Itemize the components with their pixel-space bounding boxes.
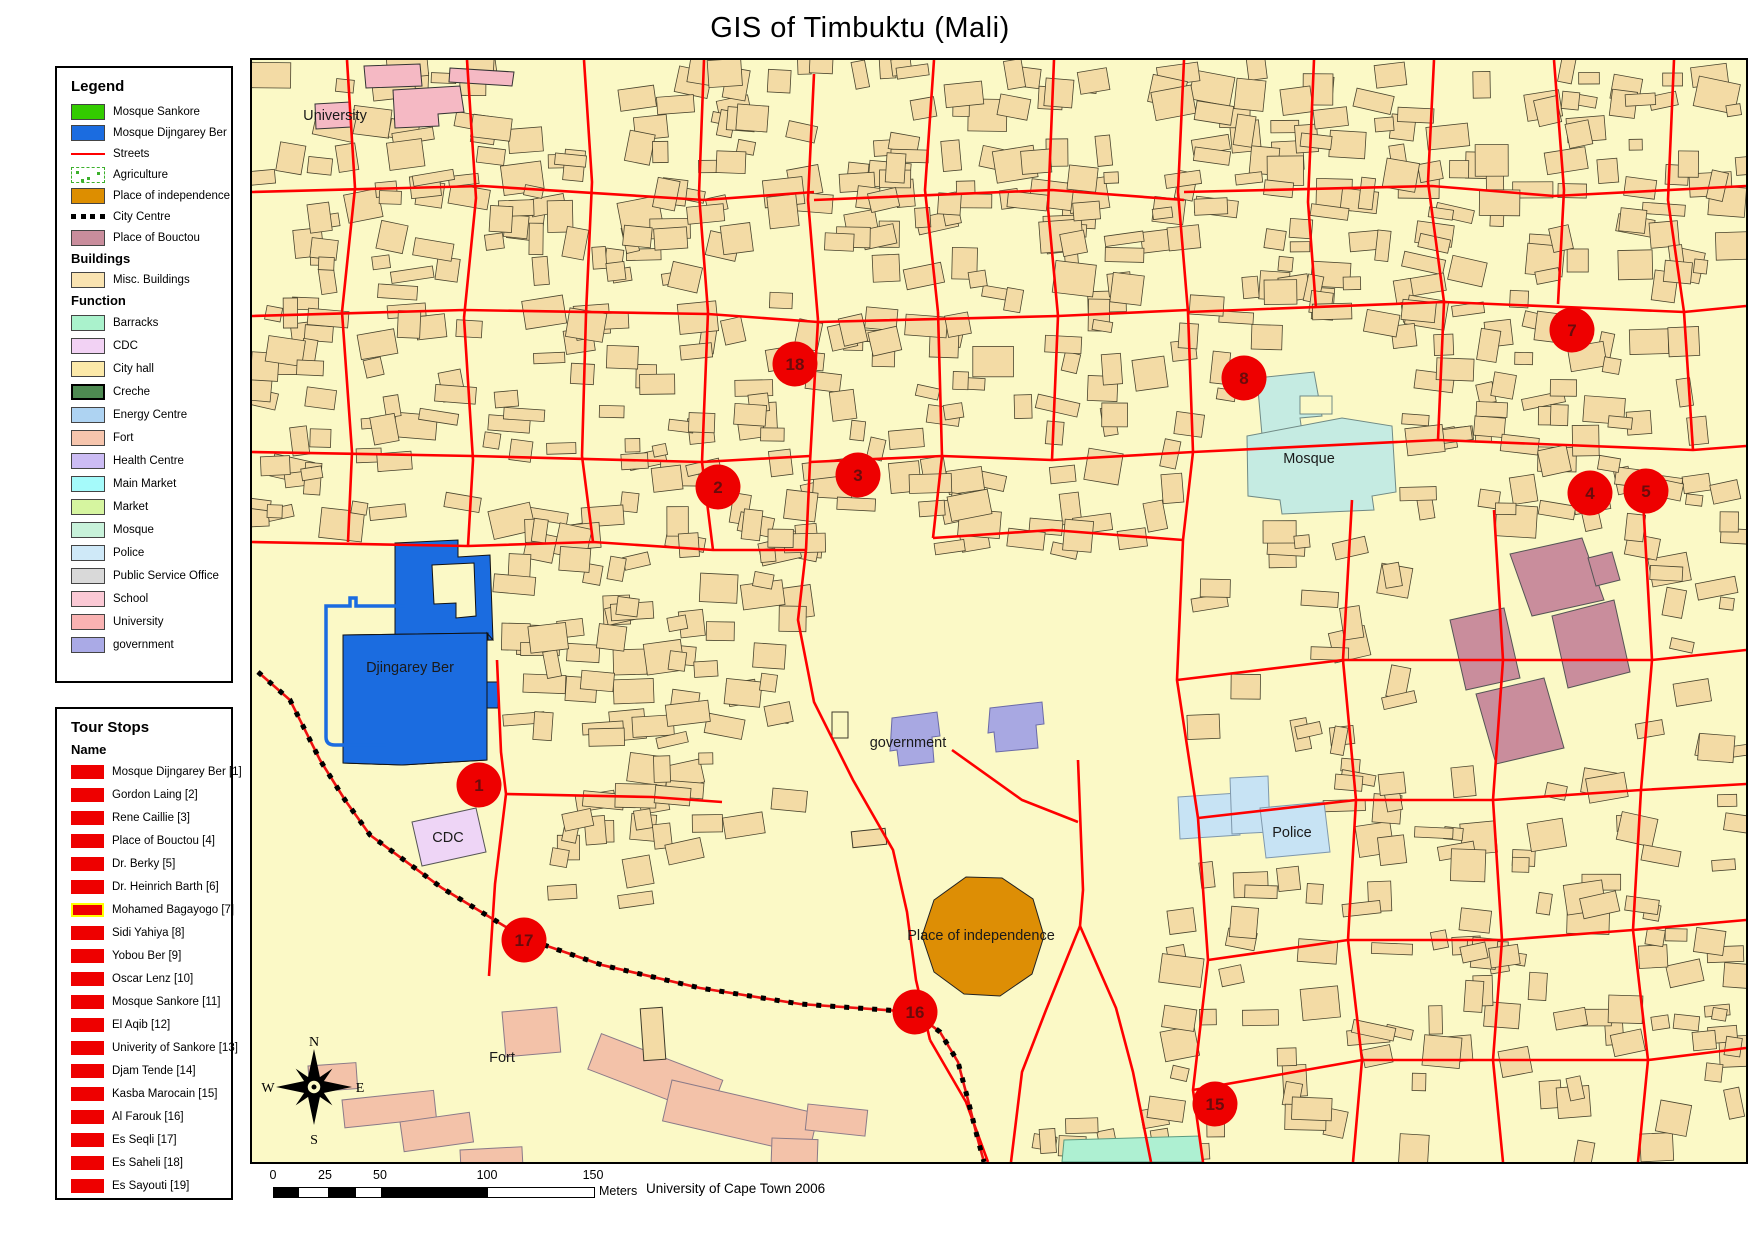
attribution: University of Cape Town 2006 [646, 1181, 825, 1196]
legend-item: Market [71, 495, 227, 518]
map-document: GIS of Timbuktu (Mali) Legend Mosque San… [0, 0, 1753, 1241]
tour-stops-list: Mosque Dijngarey Ber [1]Gordon Laing [2]… [71, 760, 227, 1197]
legend-item: University [71, 610, 227, 633]
legend-item-label: Health Centre [113, 455, 184, 467]
map-viewport[interactable]: UniversityDjingarey BerCDCgovernmentMosq… [250, 58, 1748, 1164]
tour-stop-item[interactable]: Es Saheli [18] [71, 1151, 227, 1174]
tour-stop-swatch [71, 811, 104, 825]
legend-item: Streets [71, 143, 227, 164]
legend-color-swatch [71, 230, 105, 246]
map-label: Place of independence [907, 928, 1055, 944]
tour-stop-swatch [71, 926, 104, 940]
legend-item-label: Mosque [113, 524, 154, 536]
tour-stops-header: Tour Stops [71, 719, 227, 736]
tour-stop-label: Rene Caillie [3] [112, 812, 190, 824]
tour-stop-item[interactable]: Rene Caillie [3] [71, 806, 227, 829]
legend-color-swatch [71, 315, 105, 331]
tour-stop-marker[interactable]: 2 [696, 465, 741, 510]
legend-item-label: Energy Centre [113, 409, 187, 421]
scale-tick-label: 150 [578, 1168, 608, 1182]
tour-stop-swatch [71, 1156, 104, 1170]
legend-color-swatch [71, 338, 105, 354]
tour-stop-marker-number: 3 [853, 466, 862, 485]
tour-stop-label: Dr. Berky [5] [112, 858, 175, 870]
tour-stop-marker-number: 7 [1567, 321, 1576, 340]
legend-item: City hall [71, 357, 227, 380]
tour-stop-swatch [71, 995, 104, 1009]
legend-color-swatch [71, 476, 105, 492]
tour-stop-item[interactable]: Al Farouk [16] [71, 1105, 227, 1128]
tour-stop-item[interactable]: Dr. Heinrich Barth [6] [71, 875, 227, 898]
legend-buildings-items: Misc. Buildings [71, 269, 227, 290]
tour-stop-swatch [71, 903, 104, 917]
scale-tick-label: 50 [365, 1168, 395, 1182]
tour-stop-item[interactable]: El Aqib [12] [71, 1013, 227, 1036]
legend-color-swatch [71, 499, 105, 515]
centre-building [832, 712, 848, 738]
scale-tick-label: 25 [310, 1168, 340, 1182]
legend-item: School [71, 587, 227, 610]
map-label: Police [1272, 825, 1312, 841]
legend-color-swatch [71, 614, 105, 630]
tour-stop-swatch [71, 1064, 104, 1078]
tour-stop-item[interactable]: Place of Bouctou [4] [71, 829, 227, 852]
tour-stop-label: Mosque Dijngarey Ber [1] [112, 766, 242, 778]
tour-stop-item[interactable]: Gordon Laing [2] [71, 783, 227, 806]
legend-item-label: Market [113, 501, 148, 513]
tour-stop-label: Djam Tende [14] [112, 1065, 196, 1077]
legend-item: Misc. Buildings [71, 269, 227, 290]
tour-stop-marker[interactable]: 1 [457, 763, 502, 808]
legend-item: Creche [71, 380, 227, 403]
tour-stop-swatch [71, 949, 104, 963]
tour-stop-item[interactable]: Mosque Dijngarey Ber [1] [71, 760, 227, 783]
legend-color-swatch [71, 272, 105, 288]
legend-item: Mosque [71, 518, 227, 541]
tour-stop-label: Place of Bouctou [4] [112, 835, 215, 847]
legend-color-swatch [71, 545, 105, 561]
legend-item-label: Police [113, 547, 144, 559]
map-label: government [870, 735, 947, 751]
tour-stop-marker-number: 2 [713, 478, 722, 497]
tour-stop-marker-number: 1 [474, 776, 483, 795]
mosque-courtyard [1300, 396, 1332, 414]
legend-item: Agriculture [71, 164, 227, 185]
tour-stop-marker-number: 5 [1641, 482, 1650, 501]
legend-function-items: BarracksCDCCity hallCrecheEnergy CentreF… [71, 311, 227, 656]
legend-item: Place of independence [71, 185, 227, 206]
legend-color-swatch [71, 384, 105, 400]
tour-stop-label: Kasba Marocain [15] [112, 1088, 217, 1100]
tour-stop-marker-number: 17 [515, 931, 534, 950]
legend-item: Mosque Sankore [71, 101, 227, 122]
tour-stop-swatch [71, 880, 104, 894]
legend-item-label: Mosque Dijngarey Ber [113, 127, 227, 139]
tour-stop-swatch [71, 834, 104, 848]
tour-stop-item[interactable]: Es Sayouti [19] [71, 1174, 227, 1197]
map-label: University [303, 108, 367, 124]
legend-item-label: University [113, 616, 163, 628]
tour-stop-item[interactable]: Sidi Yahiya [8] [71, 921, 227, 944]
tour-stop-label: Es Sayouti [19] [112, 1180, 189, 1192]
legend-item: Place of Bouctou [71, 227, 227, 248]
tour-stop-marker-number: 4 [1585, 484, 1595, 503]
tour-stop-label: Univerity of Sankore [13] [112, 1042, 238, 1054]
legend-item-label: CDC [113, 340, 138, 352]
legend-item-label: Barracks [113, 317, 158, 329]
tour-stop-marker[interactable]: 5 [1624, 469, 1669, 514]
legend-items: Mosque SankoreMosque Dijngarey BerStreet… [71, 101, 227, 248]
tour-stop-swatch [71, 1179, 104, 1193]
buildings-header: Buildings [71, 251, 227, 266]
scale-bar-unit: Meters [599, 1184, 637, 1198]
compass-west-label: W [261, 1081, 275, 1096]
legend-item: Main Market [71, 472, 227, 495]
scale-bar-segment [356, 1188, 381, 1197]
tour-stop-item[interactable]: Univerity of Sankore [13] [71, 1036, 227, 1059]
legend-color-swatch [71, 637, 105, 653]
tour-stop-label: Gordon Laing [2] [112, 789, 198, 801]
agriculture-swatch [71, 167, 105, 183]
legend-item: government [71, 633, 227, 656]
tour-stop-label: Es Seqli [17] [112, 1134, 177, 1146]
tour-stop-marker[interactable]: 8 [1222, 356, 1267, 401]
scale-bar [273, 1187, 595, 1198]
legend-color-swatch [71, 407, 105, 423]
tour-stop-swatch [71, 857, 104, 871]
legend-item-label: Main Market [113, 478, 176, 490]
tour-stop-label: El Aqib [12] [112, 1019, 170, 1031]
legend-item: Mosque Dijngarey Ber [71, 122, 227, 143]
legend-color-swatch [71, 522, 105, 538]
tour-stop-marker[interactable]: 7 [1550, 308, 1595, 353]
page-title: GIS of Timbuktu (Mali) [420, 12, 1300, 45]
tour-stop-marker[interactable]: 15 [1193, 1082, 1238, 1127]
tour-stops-panel: Tour Stops Name Mosque Dijngarey Ber [1]… [55, 707, 233, 1200]
tour-stop-item[interactable]: Oscar Lenz [10] [71, 967, 227, 990]
scale-bar-segment [328, 1188, 356, 1197]
tour-stop-item[interactable]: Dr. Berky [5] [71, 852, 227, 875]
tour-stop-swatch [71, 1133, 104, 1147]
tour-stop-item[interactable]: Mohamed Bagayogo [7] [71, 898, 227, 921]
scale-bar-segment [488, 1188, 592, 1197]
map-label: Djingarey Ber [366, 660, 454, 676]
fort-area-building [640, 1007, 666, 1060]
tour-stop-swatch [71, 972, 104, 986]
legend-item: Fort [71, 426, 227, 449]
scale-bar-segment [381, 1188, 488, 1197]
tour-stop-label: Sidi Yahiya [8] [112, 927, 184, 939]
legend-item-label: Public Service Office [113, 570, 219, 582]
tour-stop-swatch [71, 1041, 104, 1055]
tour-stop-item[interactable]: Es Seqli [17] [71, 1128, 227, 1151]
tour-stop-marker-number: 16 [906, 1003, 925, 1022]
legend-item: Energy Centre [71, 403, 227, 426]
tour-stop-label: Dr. Heinrich Barth [6] [112, 881, 219, 893]
map-label: Mosque [1283, 451, 1335, 467]
legend-item: Police [71, 541, 227, 564]
tour-stop-marker[interactable]: 18 [773, 342, 818, 387]
legend-item-label: Creche [113, 386, 150, 398]
legend-color-swatch [71, 591, 105, 607]
legend-item: Public Service Office [71, 564, 227, 587]
tour-stop-swatch [71, 788, 104, 802]
compass-north-label: N [309, 1035, 319, 1050]
tour-stop-swatch [71, 1018, 104, 1032]
tour-stops-name-header: Name [71, 742, 227, 757]
tour-stop-label: Yobou Ber [9] [112, 950, 181, 962]
tour-stop-item[interactable]: Djam Tende [14] [71, 1059, 227, 1082]
tour-stop-marker[interactable]: 17 [502, 918, 547, 963]
tour-stop-item[interactable]: Kasba Marocain [15] [71, 1082, 227, 1105]
tour-stop-item[interactable]: Mosque Sankore [11] [71, 990, 227, 1013]
legend-color-swatch [71, 568, 105, 584]
legend-color-swatch [71, 430, 105, 446]
legend-color-swatch [71, 125, 105, 141]
tour-stop-marker[interactable]: 3 [836, 453, 881, 498]
legend-item-label: Mosque Sankore [113, 106, 200, 118]
legend-item-label: Streets [113, 148, 149, 160]
tour-stop-marker[interactable]: 4 [1568, 471, 1613, 516]
legend-item-label: Misc. Buildings [113, 274, 190, 286]
legend-panel: Legend Mosque SankoreMosque Dijngarey Be… [55, 66, 233, 683]
map-canvas: UniversityDjingarey BerCDCgovernmentMosq… [252, 60, 1746, 1162]
legend-color-swatch [71, 453, 105, 469]
scale-tick-label: 100 [472, 1168, 502, 1182]
tour-stop-marker-number: 18 [786, 355, 805, 374]
legend-item-label: Agriculture [113, 169, 168, 181]
tour-stop-label: Mohamed Bagayogo [7] [112, 904, 234, 916]
tour-stop-label: Oscar Lenz [10] [112, 973, 193, 985]
tour-stop-swatch [71, 765, 104, 779]
map-label: CDC [432, 830, 463, 846]
tour-stop-label: Al Farouk [16] [112, 1111, 184, 1123]
legend-header: Legend [71, 78, 227, 95]
tour-stop-label: Mosque Sankore [11] [112, 996, 220, 1008]
function-header: Function [71, 293, 227, 308]
city-centre-dash-swatch [71, 214, 105, 219]
tour-stop-item[interactable]: Yobou Ber [9] [71, 944, 227, 967]
scale-bar-segment [299, 1188, 328, 1197]
green-area [1062, 1136, 1203, 1162]
tour-stop-marker-number: 8 [1239, 369, 1248, 388]
legend-color-swatch [71, 188, 105, 204]
legend-item-label: government [113, 639, 174, 651]
legend-item-label: School [113, 593, 148, 605]
tour-stop-marker-number: 15 [1206, 1095, 1225, 1114]
map-label: Fort [489, 1050, 515, 1066]
legend-item-label: Fort [113, 432, 133, 444]
tour-stop-swatch [71, 1087, 104, 1101]
compass-east-label: E [356, 1081, 365, 1096]
legend-item-label: City Centre [113, 211, 171, 223]
legend-item: Barracks [71, 311, 227, 334]
compass-south-label: S [310, 1133, 318, 1148]
legend-item-label: Place of Bouctou [113, 232, 200, 244]
legend-item-label: City hall [113, 363, 154, 375]
scale-tick-label: 0 [258, 1168, 288, 1182]
legend-item: CDC [71, 334, 227, 357]
tour-stop-marker[interactable]: 16 [893, 990, 938, 1035]
scale-bar-segment [274, 1188, 299, 1197]
legend-color-swatch [71, 104, 105, 120]
streets-line-swatch [71, 153, 105, 155]
legend-item: City Centre [71, 206, 227, 227]
legend-item-label: Place of independence [113, 190, 230, 202]
legend-item: Health Centre [71, 449, 227, 472]
legend-color-swatch [71, 361, 105, 377]
tour-stop-swatch [71, 1110, 104, 1124]
tour-stop-label: Es Saheli [18] [112, 1157, 183, 1169]
